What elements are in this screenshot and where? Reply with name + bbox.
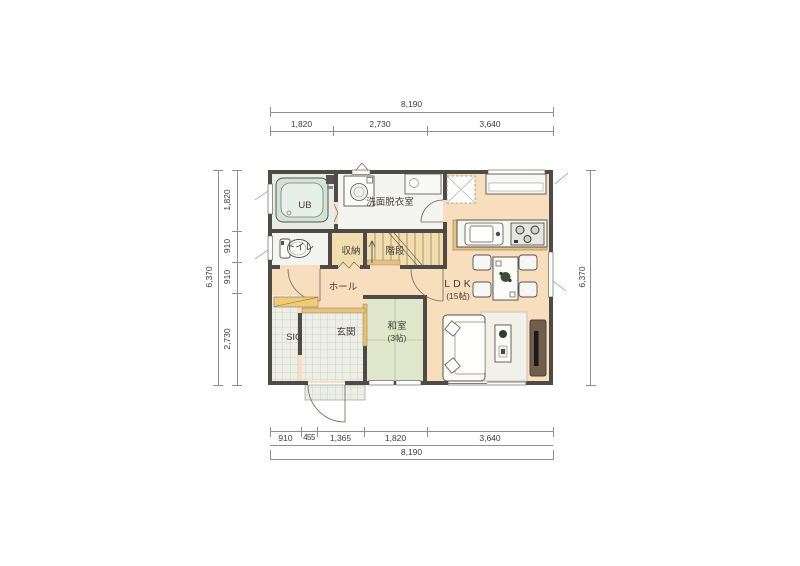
porch-floor bbox=[305, 385, 365, 400]
faucet bbox=[496, 232, 500, 236]
refrigerator-space bbox=[447, 176, 475, 203]
entrance-step bbox=[302, 308, 365, 313]
washitsu-label: 和室 bbox=[381, 321, 413, 332]
dim-line bbox=[237, 170, 238, 385]
washitsu-size-label: (3帖) bbox=[379, 333, 415, 344]
dim-top-seg-0: 1,820 bbox=[270, 119, 333, 129]
dim-line bbox=[270, 431, 553, 432]
dim-line bbox=[270, 112, 553, 113]
washitsu-window-1 bbox=[369, 381, 394, 386]
hall-label: ホール bbox=[323, 282, 363, 293]
chair bbox=[473, 255, 491, 270]
washroom-label: 洗面脱衣室 bbox=[362, 197, 418, 208]
toilet-label: トイレ bbox=[282, 242, 318, 253]
vanity-counter bbox=[405, 174, 441, 194]
dim-left-seg-3: 2,730 bbox=[222, 314, 232, 364]
dim-left-seg-0: 1,820 bbox=[222, 175, 232, 225]
dim-top-total: 8,190 bbox=[270, 99, 553, 109]
dim-bottom-seg-1: 455 bbox=[299, 433, 319, 443]
entrance-label: 玄関 bbox=[330, 327, 362, 338]
dim-bottom-seg-4: 3,640 bbox=[427, 433, 553, 443]
living-set bbox=[443, 312, 546, 381]
dim-left-total: 6,370 bbox=[204, 252, 214, 302]
sic-label: SIC bbox=[278, 332, 310, 343]
chair bbox=[519, 282, 537, 297]
dim-left-seg-2: 910 bbox=[222, 252, 232, 302]
ub-label: UB bbox=[293, 200, 317, 211]
tv-screen bbox=[534, 331, 539, 366]
storage-label: 収納 bbox=[335, 246, 367, 257]
back-counter bbox=[486, 174, 546, 194]
dim-bottom-total: 8,190 bbox=[270, 447, 553, 457]
dim-bottom-seg-2: 1,365 bbox=[317, 433, 364, 443]
ldk-side-window bbox=[549, 252, 554, 297]
coffee-table-plant bbox=[499, 330, 507, 338]
dim-line bbox=[270, 131, 553, 132]
dim-line bbox=[270, 445, 553, 446]
dim-bottom-seg-3: 1,820 bbox=[364, 433, 427, 443]
dim-top-seg-2: 3,640 bbox=[427, 119, 553, 129]
floor-plan-page: UB 洗面脱衣室 トイレ 収納 階段 ホール LDK (15帖) 玄関 SIC … bbox=[0, 0, 800, 566]
vent-marker bbox=[356, 163, 368, 170]
bathtub bbox=[276, 175, 334, 222]
dim-top-seg-1: 2,730 bbox=[333, 119, 427, 129]
toilet-window bbox=[268, 236, 273, 260]
dim-right-total: 6,370 bbox=[577, 252, 587, 302]
dim-line bbox=[590, 170, 591, 385]
ldk-label: LDK bbox=[438, 279, 480, 290]
floor-plan-graphics bbox=[248, 150, 573, 420]
dim-line bbox=[270, 459, 553, 460]
washitsu-window-2 bbox=[396, 381, 421, 386]
dim-bottom-seg-0: 910 bbox=[270, 433, 301, 443]
entrance-floor bbox=[302, 313, 365, 381]
kitchen-island bbox=[453, 220, 547, 250]
stairs-label: 階段 bbox=[379, 246, 411, 257]
ub-window bbox=[268, 184, 273, 214]
dim-line bbox=[218, 170, 219, 385]
ldk-size-label: (15帖) bbox=[436, 291, 480, 302]
chair bbox=[519, 255, 537, 270]
washroom-window bbox=[352, 170, 370, 175]
